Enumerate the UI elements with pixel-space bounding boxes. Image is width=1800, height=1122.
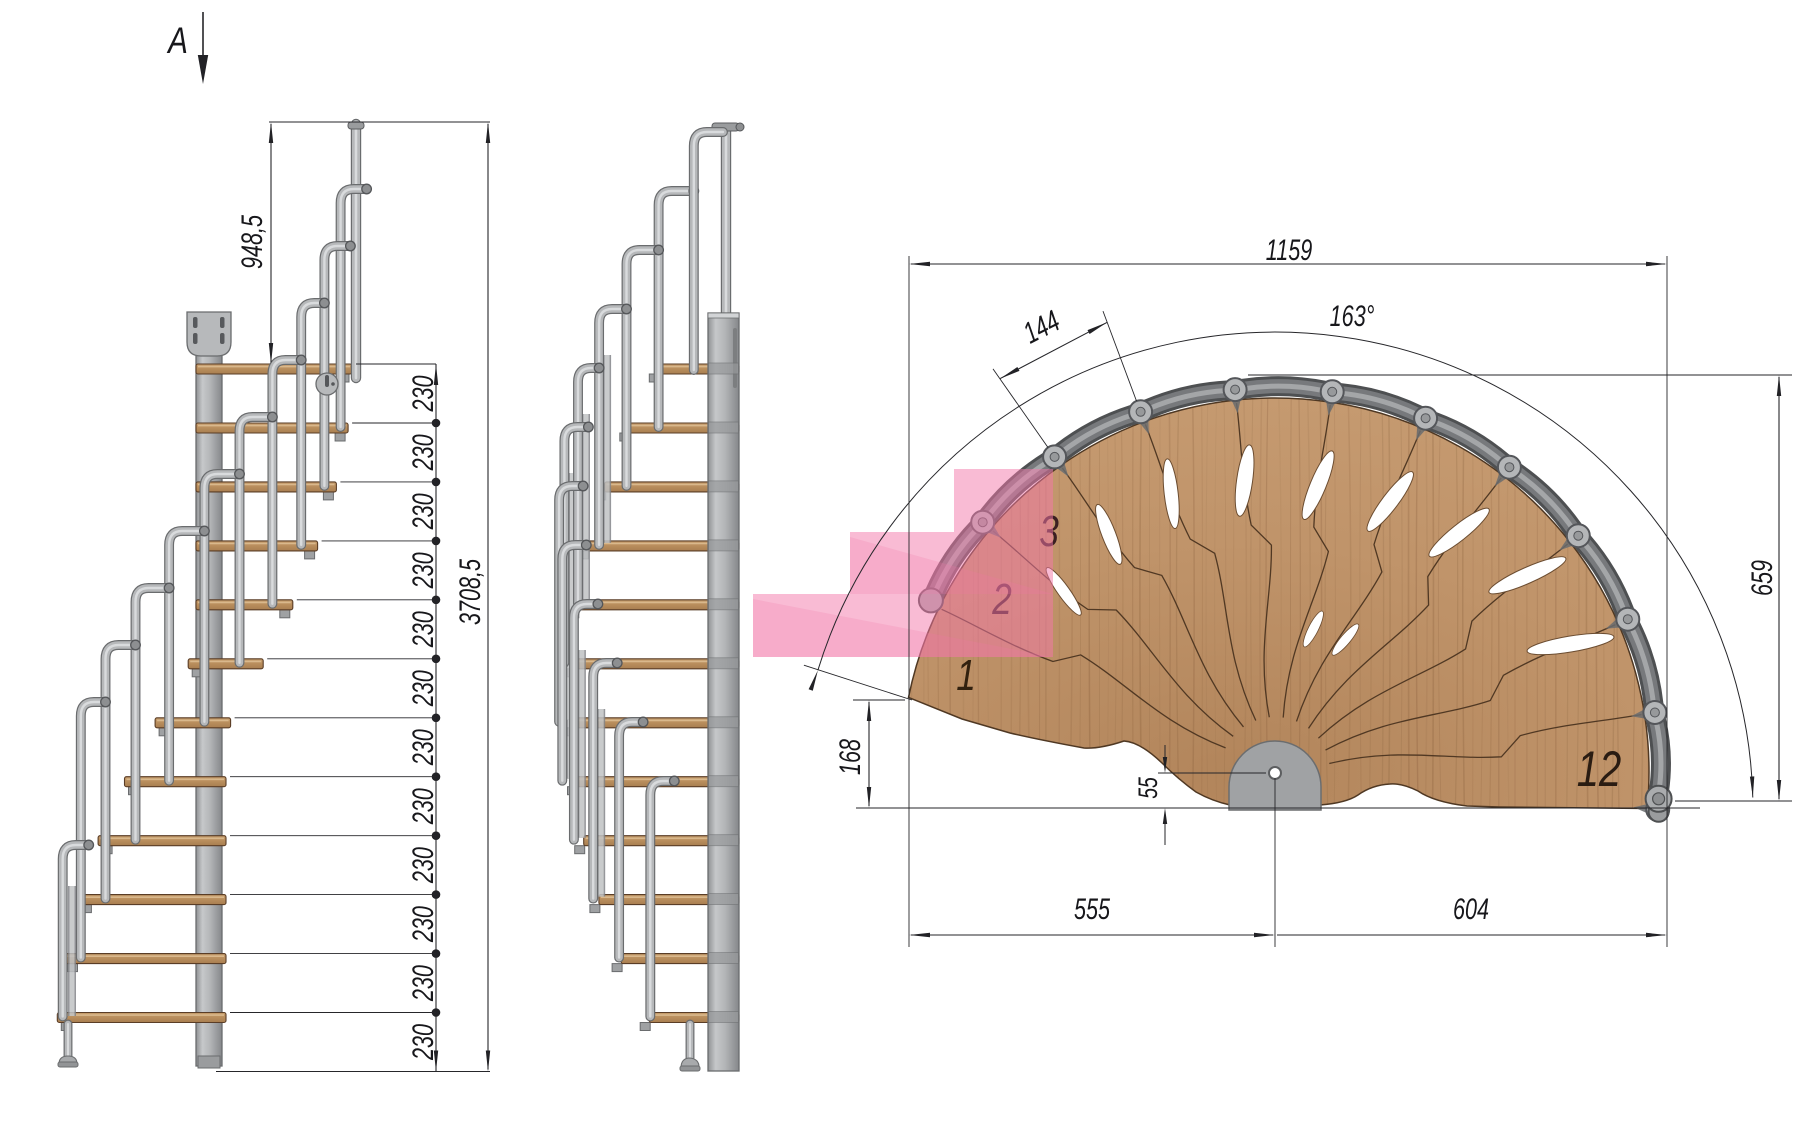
svg-text:230: 230 — [405, 611, 439, 648]
svg-text:230: 230 — [405, 375, 439, 412]
svg-text:1159: 1159 — [1266, 232, 1312, 266]
svg-text:604: 604 — [1453, 891, 1489, 925]
svg-text:230: 230 — [405, 906, 439, 943]
svg-text:230: 230 — [405, 493, 439, 530]
svg-text:659: 659 — [1744, 560, 1778, 596]
svg-text:230: 230 — [405, 552, 439, 589]
svg-text:230: 230 — [405, 670, 439, 707]
svg-text:1: 1 — [956, 651, 976, 700]
svg-text:948,5: 948,5 — [234, 215, 268, 269]
svg-text:230: 230 — [405, 788, 439, 825]
svg-text:12: 12 — [1577, 741, 1621, 797]
svg-text:230: 230 — [405, 729, 439, 766]
svg-text:230: 230 — [405, 1024, 439, 1061]
svg-text:230: 230 — [405, 847, 439, 884]
svg-text:3708,5: 3708,5 — [452, 559, 486, 625]
svg-text:A: A — [166, 21, 188, 62]
svg-text:168: 168 — [832, 739, 866, 775]
svg-text:230: 230 — [405, 434, 439, 471]
svg-text:555: 555 — [1074, 891, 1110, 925]
svg-text:163°: 163° — [1330, 298, 1375, 332]
svg-text:55: 55 — [1133, 776, 1163, 798]
svg-text:230: 230 — [405, 965, 439, 1002]
